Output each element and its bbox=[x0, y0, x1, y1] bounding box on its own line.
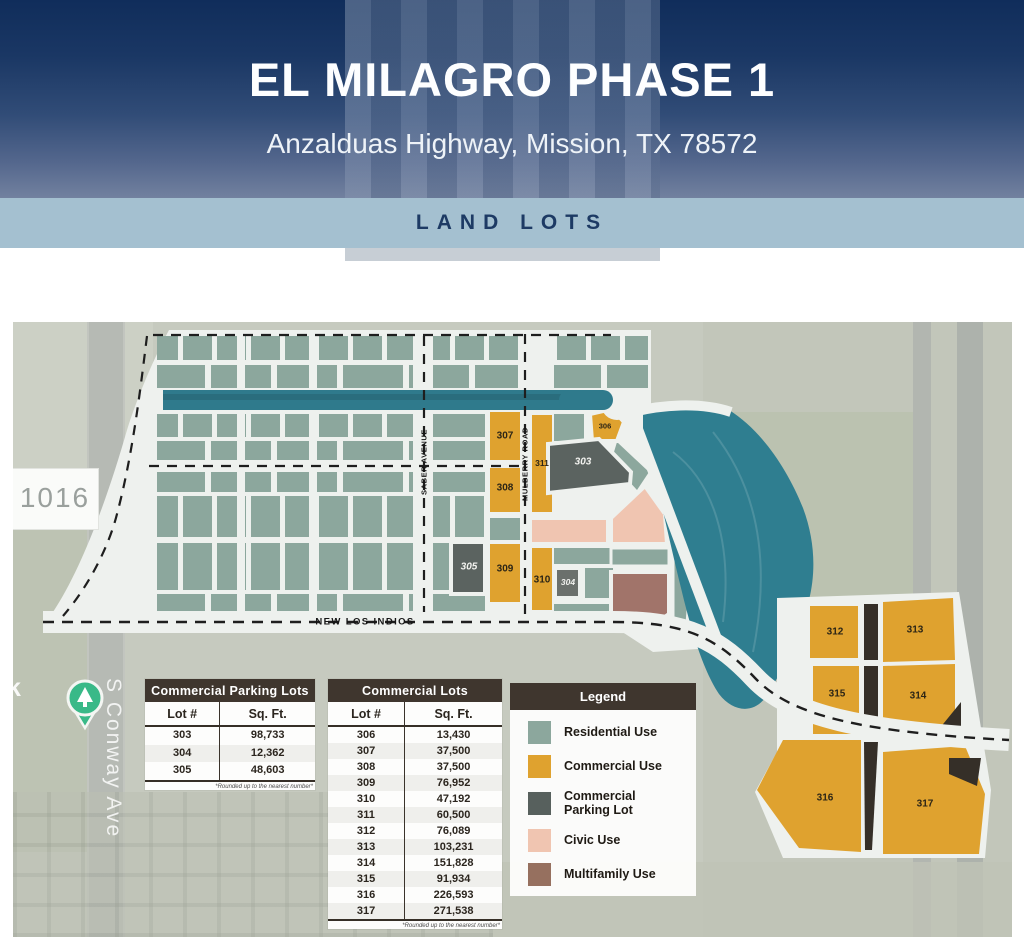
lot-label-317: 317 bbox=[917, 799, 934, 810]
table-footnote: *Rounded up to the nearest number* bbox=[328, 923, 502, 929]
cell-sqft: 151,828 bbox=[405, 855, 502, 871]
cell-sqft: 98,733 bbox=[220, 727, 315, 745]
lot-label-316: 316 bbox=[817, 793, 834, 804]
cell-lot: 316 bbox=[328, 887, 405, 903]
legend-label: Civic Use bbox=[564, 833, 679, 847]
cell-lot: 304 bbox=[145, 745, 220, 763]
residential-swatch bbox=[528, 721, 551, 744]
legend-item-commercial: Commercial Use bbox=[528, 755, 696, 778]
commercial-swatch bbox=[528, 755, 551, 778]
cell-lot: 313 bbox=[328, 839, 405, 855]
table-row: 311 60,500 bbox=[328, 807, 502, 823]
street-label-saber: SABER AVENUE bbox=[420, 429, 429, 495]
street-label-conway: S Conway Ave bbox=[101, 678, 125, 937]
lot-label-312: 312 bbox=[827, 627, 844, 638]
cell-sqft: 47,192 bbox=[405, 791, 502, 807]
legend-item-multifamily: Multifamily Use bbox=[528, 863, 696, 886]
cell-sqft: 48,603 bbox=[220, 762, 315, 780]
cell-sqft: 271,538 bbox=[405, 903, 502, 919]
lot-label-313: 313 bbox=[907, 625, 924, 636]
table-subheader: Lot # Sq. Ft. bbox=[328, 702, 502, 727]
page-title: EL MILAGRO PHASE 1 bbox=[0, 52, 1024, 107]
cell-sqft: 60,500 bbox=[405, 807, 502, 823]
lot-label-315: 315 bbox=[829, 689, 846, 700]
lot-label-309: 309 bbox=[497, 564, 514, 575]
cell-lot: 303 bbox=[145, 727, 220, 745]
lot-label-310: 310 bbox=[534, 575, 551, 586]
cell-sqft: 226,593 bbox=[405, 887, 502, 903]
table-subheader: Lot # Sq. Ft. bbox=[145, 702, 315, 727]
legend-item-civic: Civic Use bbox=[528, 829, 696, 852]
legend-title: Legend bbox=[510, 683, 696, 710]
legend-label: Residential Use bbox=[564, 725, 679, 739]
cell-lot: 314 bbox=[328, 855, 405, 871]
cell-lot: 305 bbox=[145, 762, 220, 780]
cell-sqft: 76,089 bbox=[405, 823, 502, 839]
table-commercial-parking-lots: Commercial Parking Lots Lot # Sq. Ft. 30… bbox=[145, 679, 315, 790]
parking-swatch bbox=[528, 792, 551, 815]
lot-label-303: 303 bbox=[575, 457, 592, 468]
multifamily-swatch bbox=[528, 863, 551, 886]
lot-label-304: 304 bbox=[561, 577, 575, 587]
table-body: 306 13,430 307 37,500 308 37,500 309 76,… bbox=[328, 727, 502, 921]
table-title: Commercial Parking Lots bbox=[145, 679, 315, 702]
cell-lot: 317 bbox=[328, 903, 405, 919]
partial-place-label: k bbox=[13, 674, 21, 703]
table-body: 303 98,733 304 12,362 305 48,603 bbox=[145, 727, 315, 782]
col-lot: Lot # bbox=[145, 702, 220, 725]
cell-sqft: 12,362 bbox=[220, 745, 315, 763]
cell-lot: 315 bbox=[328, 871, 405, 887]
table-row: 307 37,500 bbox=[328, 743, 502, 759]
cell-sqft: 37,500 bbox=[405, 759, 502, 775]
cell-lot: 308 bbox=[328, 759, 405, 775]
legend-label: Commercial Parking Lot bbox=[564, 789, 679, 818]
lot-label-308: 308 bbox=[497, 483, 514, 494]
legend-label: Commercial Use bbox=[564, 759, 679, 773]
street-label-mulberry: MULBERRY ROAD bbox=[521, 427, 530, 501]
cell-sqft: 37,500 bbox=[405, 743, 502, 759]
header-banner: EL MILAGRO PHASE 1 Anzalduas Highway, Mi… bbox=[0, 0, 1024, 198]
photo-remnant-strip bbox=[345, 248, 660, 261]
table-title: Commercial Lots bbox=[328, 679, 502, 702]
highway-sign-1016: 1016 bbox=[13, 468, 99, 530]
table-row: 316 226,593 bbox=[328, 887, 502, 903]
section-band-label: LAND LOTS bbox=[0, 211, 1024, 235]
lot-label-307: 307 bbox=[497, 431, 514, 442]
col-sqft: Sq. Ft. bbox=[220, 702, 315, 725]
canal bbox=[163, 390, 599, 410]
cell-lot: 306 bbox=[328, 727, 405, 743]
lot-label-314: 314 bbox=[910, 691, 927, 702]
table-row: 314 151,828 bbox=[328, 855, 502, 871]
civic-swatch bbox=[528, 829, 551, 852]
table-row: 317 271,538 bbox=[328, 903, 502, 919]
lot-label-306: 306 bbox=[599, 422, 612, 431]
table-row: 308 37,500 bbox=[328, 759, 502, 775]
table-footnote: *Rounded up to the nearest number* bbox=[145, 784, 315, 790]
legend: Legend Residential Use Commercial Use Co… bbox=[510, 683, 696, 896]
cell-sqft: 91,934 bbox=[405, 871, 502, 887]
site-plan-map: 1016 S Conway Ave k SABER AVENUE MULBERR… bbox=[13, 322, 1012, 937]
table-row: 304 12,362 bbox=[145, 745, 315, 763]
lot-label-311: 311 bbox=[535, 458, 549, 468]
table-row: 305 48,603 bbox=[145, 762, 315, 780]
cell-sqft: 13,430 bbox=[405, 727, 502, 743]
page-subtitle: Anzalduas Highway, Mission, TX 78572 bbox=[0, 128, 1024, 160]
legend-item-residential: Residential Use bbox=[528, 721, 696, 744]
table-row: 306 13,430 bbox=[328, 727, 502, 743]
table-row: 309 76,952 bbox=[328, 775, 502, 791]
cell-lot: 307 bbox=[328, 743, 405, 759]
col-lot: Lot # bbox=[328, 702, 405, 725]
lot-label-305: 305 bbox=[461, 562, 478, 573]
cell-lot: 311 bbox=[328, 807, 405, 823]
table-row: 315 91,934 bbox=[328, 871, 502, 887]
cell-sqft: 76,952 bbox=[405, 775, 502, 791]
legend-label: Multifamily Use bbox=[564, 867, 679, 881]
cell-sqft: 103,231 bbox=[405, 839, 502, 855]
table-row: 313 103,231 bbox=[328, 839, 502, 855]
cell-lot: 309 bbox=[328, 775, 405, 791]
col-sqft: Sq. Ft. bbox=[405, 702, 502, 725]
cell-lot: 312 bbox=[328, 823, 405, 839]
table-row: 310 47,192 bbox=[328, 791, 502, 807]
park-pin-icon bbox=[68, 681, 102, 728]
cell-lot: 310 bbox=[328, 791, 405, 807]
table-row: 303 98,733 bbox=[145, 727, 315, 745]
street-label-new-los-indios: NEW LOS INDIOS bbox=[315, 617, 414, 628]
legend-item-parking: Commercial Parking Lot bbox=[528, 789, 696, 818]
table-commercial-lots: Commercial Lots Lot # Sq. Ft. 306 13,430… bbox=[328, 679, 502, 929]
table-row: 312 76,089 bbox=[328, 823, 502, 839]
